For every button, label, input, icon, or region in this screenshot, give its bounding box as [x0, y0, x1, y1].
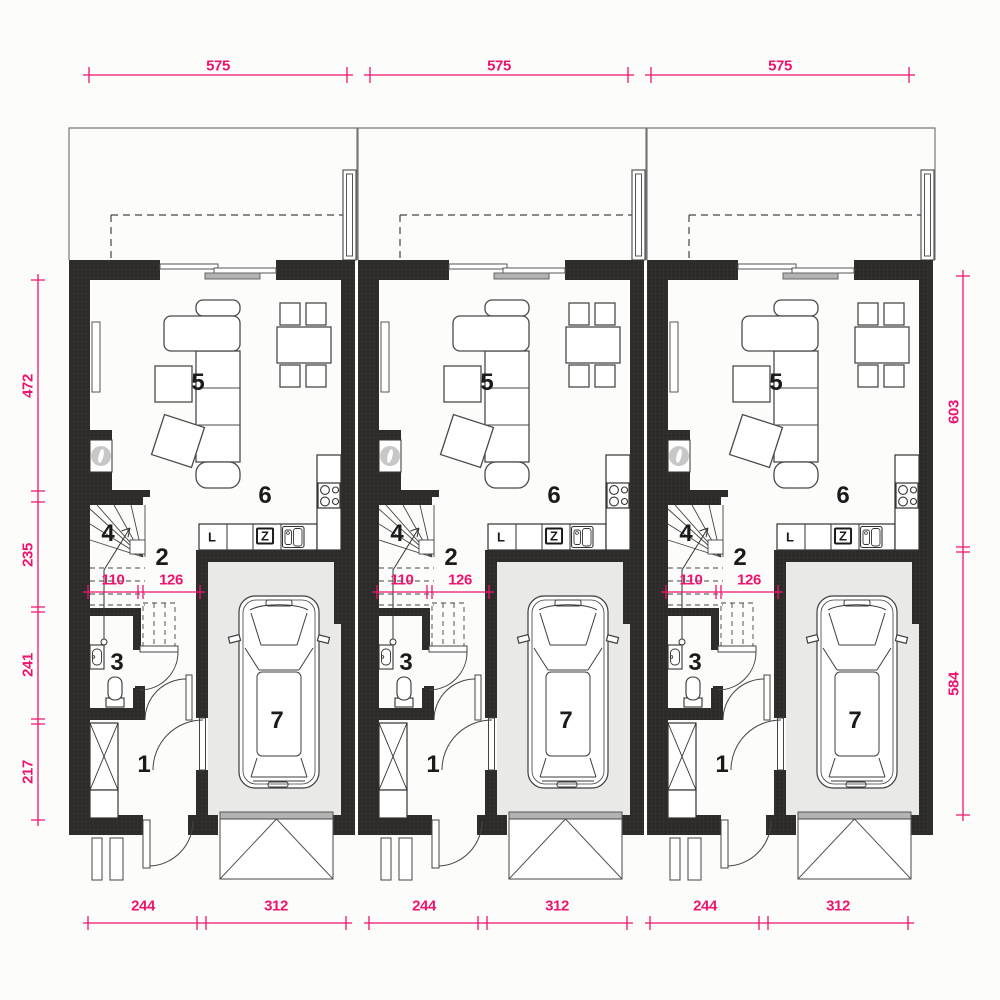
room-label-1-unit1: 1 — [137, 753, 150, 777]
room-label-7-unit2: 7 — [559, 709, 572, 733]
kitchen-fridge-label-unit2: L — [497, 531, 505, 544]
dim-width-unit1: 575 — [206, 59, 230, 74]
dim-front-right-unit3: 312 — [826, 899, 850, 914]
dim-stair-unit3: 110 — [680, 573, 703, 588]
dim-right-584: 584 — [947, 672, 962, 696]
room-label-5-unit2: 5 — [480, 371, 493, 395]
room-label-5-unit3: 5 — [769, 371, 782, 395]
kitchen-sink-unit-label-unit3: Z — [834, 528, 852, 545]
dim-stair-unit1: 110 — [102, 573, 125, 588]
room-label-4-unit3: 4 — [679, 522, 692, 546]
kitchen-fridge-label-unit1: L — [208, 531, 216, 544]
room-label-7-unit3: 7 — [848, 709, 861, 733]
room-label-4-unit1: 4 — [101, 522, 114, 546]
room-label-3-unit3: 3 — [688, 651, 701, 675]
dim-hall-unit3: 126 — [737, 573, 761, 588]
room-label-2-unit1: 2 — [155, 546, 168, 570]
room-label-2-unit3: 2 — [733, 546, 746, 570]
dim-front-right-unit2: 312 — [545, 899, 569, 914]
kitchen-sink-unit-label-unit2: Z — [545, 528, 563, 545]
room-label-6-unit1: 6 — [258, 484, 271, 508]
dim-front-right-unit1: 312 — [264, 899, 288, 914]
room-label-1-unit3: 1 — [715, 753, 728, 777]
kitchen-sink-unit-label-unit1: Z — [256, 528, 274, 545]
dim-left-241: 241 — [21, 653, 36, 677]
dim-width-unit2: 575 — [487, 59, 511, 74]
room-label-3-unit2: 3 — [399, 651, 412, 675]
dim-front-left-unit1: 244 — [131, 899, 155, 914]
floor-plan-drawing — [0, 0, 1000, 1000]
room-label-6-unit2: 6 — [547, 484, 560, 508]
floor-plan-page: 575 575 575 472 235 241 217 603 584 244 … — [0, 0, 1000, 1000]
room-label-4-unit2: 4 — [390, 522, 403, 546]
dim-right-603: 603 — [947, 400, 962, 424]
dim-hall-unit2: 126 — [448, 573, 472, 588]
dim-front-left-unit3: 244 — [693, 899, 717, 914]
kitchen-fridge-label-unit3: L — [786, 531, 794, 544]
dim-left-235: 235 — [21, 543, 36, 567]
room-label-3-unit1: 3 — [110, 651, 123, 675]
room-label-7-unit1: 7 — [270, 709, 283, 733]
dim-left-217: 217 — [21, 760, 36, 784]
room-label-5-unit1: 5 — [191, 371, 204, 395]
dim-width-unit3: 575 — [768, 59, 792, 74]
dim-left-472: 472 — [21, 374, 36, 398]
room-label-2-unit2: 2 — [444, 546, 457, 570]
dim-front-left-unit2: 244 — [412, 899, 436, 914]
room-label-1-unit2: 1 — [426, 753, 439, 777]
dim-stair-unit2: 110 — [391, 573, 414, 588]
dim-hall-unit1: 126 — [159, 573, 183, 588]
room-label-6-unit3: 6 — [836, 484, 849, 508]
